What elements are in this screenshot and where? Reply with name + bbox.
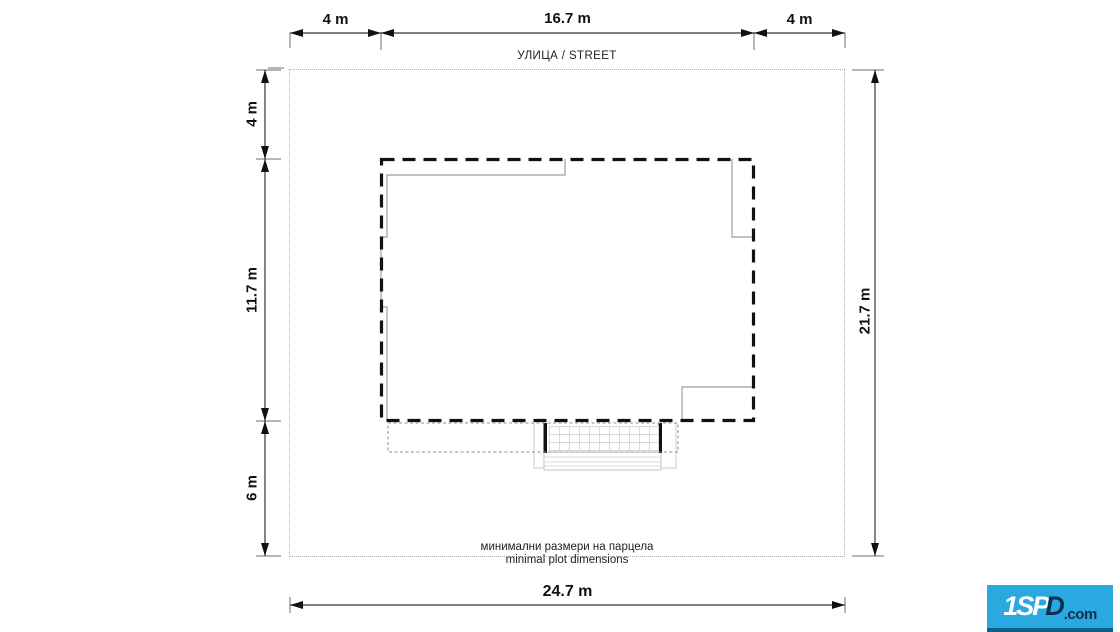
dim-top-right-label: 4 m	[754, 12, 845, 27]
house-wall-bottomright-notch	[682, 387, 753, 421]
dim-right-total-label: 21.7 m	[858, 288, 873, 335]
house-wall-right-notch	[732, 159, 753, 237]
terrace-post-right	[659, 423, 663, 453]
terrace-hatch-grid	[549, 426, 659, 452]
plan-linework	[0, 0, 1120, 632]
dimension-arrows	[261, 29, 879, 609]
caption-english: minimal plot dimensions	[289, 554, 845, 567]
terrace-steps	[544, 452, 661, 470]
ticks-top	[290, 33, 845, 50]
dim-left-building-label: 11.7 m	[245, 267, 260, 313]
caption-bulgarian: минимални размери на парцела	[289, 541, 845, 554]
logo-suffix: .com	[1064, 607, 1097, 622]
dimension-lines	[265, 33, 875, 605]
logo-text-light: 1SP	[1003, 593, 1048, 620]
logo-text-dark: D	[1045, 593, 1063, 620]
witness-ticks	[256, 33, 884, 613]
dim-top-center-label: 16.7 m	[381, 11, 754, 26]
watermark-logo: 1SP D .com	[987, 585, 1113, 632]
site-plan-canvas: 4 m 16.7 m 4 m 4 m 11.7 m 6 m 21.7 m 24.…	[0, 0, 1120, 632]
building-envelope-dashed	[382, 160, 754, 421]
terrace-post-left	[544, 423, 548, 453]
dim-bottom-total-label: 24.7 m	[290, 584, 845, 600]
dim-left-rear-label: 6 m	[245, 475, 260, 501]
house-wall-left	[381, 159, 565, 420]
house-inner-outline	[381, 159, 753, 421]
dim-left-front-label: 4 m	[245, 101, 260, 127]
dim-top-left-label: 4 m	[290, 12, 381, 27]
street-label: УЛИЦА / STREET	[289, 50, 845, 63]
